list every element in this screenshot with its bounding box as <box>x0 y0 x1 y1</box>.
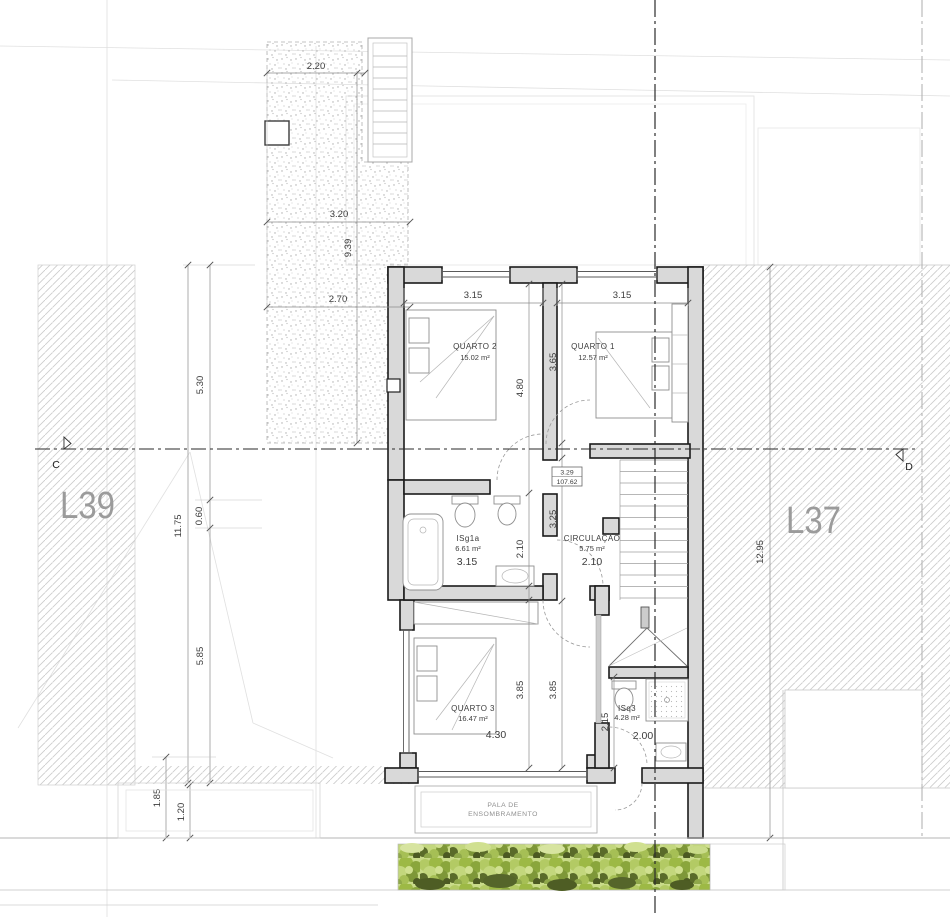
patio-cutout <box>785 690 922 788</box>
level-upper-height: 3.29 <box>560 470 573 477</box>
dim-isq3-depth: 2.15 <box>600 713 611 732</box>
exterior-stair-block <box>368 38 412 162</box>
isg1a-name: ISg1a <box>457 534 480 543</box>
isq3-area: 4.28 m² <box>614 713 640 722</box>
isq3-width: 2.00 <box>633 730 654 742</box>
quarto3-width: 4.30 <box>486 729 507 741</box>
quarto1-area: 12.57 m² <box>578 353 608 362</box>
level-upper-elevation: 107.62 <box>557 479 578 486</box>
dim-q2-width: 3.15 <box>464 290 483 301</box>
isq3-name: ISq3 <box>618 704 636 713</box>
canopy-label-line1: PALA DE <box>487 802 518 809</box>
section-label-d: D <box>905 461 913 473</box>
dim-hall-depth: 3.25 <box>548 510 559 529</box>
circulacao-area: 5.75 m² <box>579 544 605 553</box>
dim-q3-depth-b: 3.85 <box>548 681 559 700</box>
lot-label-l37: L37 <box>786 500 841 542</box>
dim-court-top: 2.20 <box>307 61 326 72</box>
wall-vent-box <box>387 379 400 392</box>
door-leaf <box>641 607 649 628</box>
dim-left-lower: 5.85 <box>195 647 206 666</box>
circulacao-name: CIRCULAÇÃO <box>564 534 620 543</box>
vegetation-strip <box>398 842 710 891</box>
quarto2-furniture <box>406 310 496 420</box>
dim-q1-width: 3.15 <box>613 290 632 301</box>
dim-q1-depth: 3.65 <box>548 353 559 372</box>
lot-label-l39: L39 <box>60 485 115 527</box>
dim-q2-depth: 4.80 <box>515 379 526 398</box>
quarto2-name: QUARTO 2 <box>453 342 497 351</box>
dim-left-offset: 0.60 <box>194 507 205 526</box>
dim-q3-depth-a: 3.85 <box>515 681 526 700</box>
quarto3-name: QUARTO 3 <box>451 704 495 713</box>
isg1a-width: 3.15 <box>457 556 478 568</box>
floor-plan-drawing: 2.20 3.20 2.70 9.39 3.15 3.15 4.80 3.65 … <box>0 0 950 917</box>
level-marker-upper: 3.29 107.62 <box>552 467 582 486</box>
canopy-label-line2: ENSOMBRAMENTO <box>468 811 538 818</box>
courtyard-vent-box <box>265 121 289 145</box>
quarto1-name: QUARTO 1 <box>571 342 615 351</box>
quarto3-area: 16.47 m² <box>458 714 488 723</box>
dim-left-upper: 5.30 <box>195 376 206 395</box>
dim-court-bottom: 2.70 <box>329 294 348 305</box>
dim-canopy-a: 1.85 <box>152 789 163 808</box>
dim-court-mid: 3.20 <box>330 209 349 220</box>
dim-bath-depth: 2.10 <box>515 540 526 559</box>
section-label-c: C <box>52 459 60 471</box>
dim-court-len: 9.39 <box>343 239 354 258</box>
dim-right-total: 12.95 <box>755 540 766 564</box>
dim-canopy-b: 1.20 <box>176 803 187 822</box>
isg1a-area: 6.61 m² <box>455 544 481 553</box>
shading-canopy: PALA DE ENSOMBRAMENTO <box>415 786 597 833</box>
quarto2-area: 15.02 m² <box>460 353 490 362</box>
circulacao-width: 2.10 <box>582 556 603 568</box>
door-leaf <box>596 615 601 723</box>
floor-plan-canvas: 2.20 3.20 2.70 9.39 3.15 3.15 4.80 3.65 … <box>0 0 950 917</box>
dim-left-total: 11.75 <box>173 514 184 537</box>
